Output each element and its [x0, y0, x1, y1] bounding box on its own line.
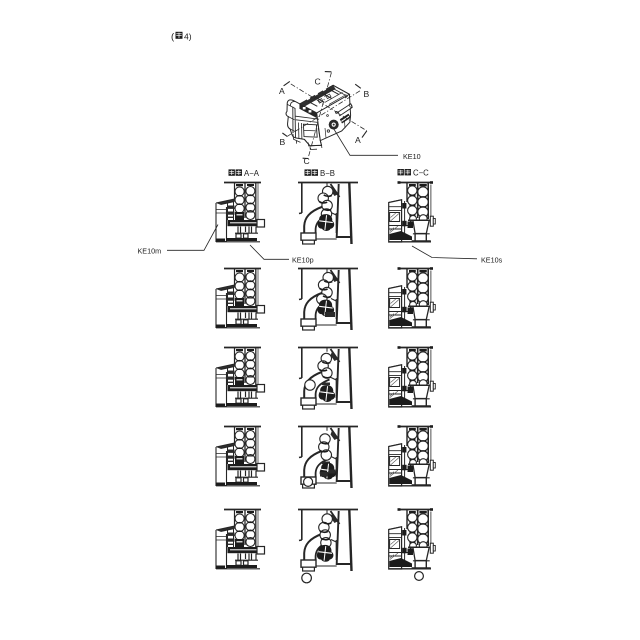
- svg-text:KE10: KE10: [403, 152, 421, 161]
- svg-text:B: B: [364, 89, 370, 99]
- svg-text:B−B: B−B: [320, 169, 335, 178]
- svg-text:KE10m: KE10m: [138, 247, 162, 256]
- svg-text:A: A: [279, 86, 285, 96]
- svg-text:A−A: A−A: [244, 169, 260, 178]
- svg-text:C: C: [315, 77, 321, 87]
- svg-text:B: B: [280, 137, 286, 147]
- svg-text:4): 4): [184, 32, 192, 42]
- svg-text:KE10s: KE10s: [481, 256, 503, 265]
- svg-text:C−C: C−C: [413, 169, 429, 178]
- svg-text:C: C: [304, 156, 310, 166]
- svg-text:KE10p: KE10p: [292, 256, 314, 265]
- svg-text:A: A: [355, 135, 361, 145]
